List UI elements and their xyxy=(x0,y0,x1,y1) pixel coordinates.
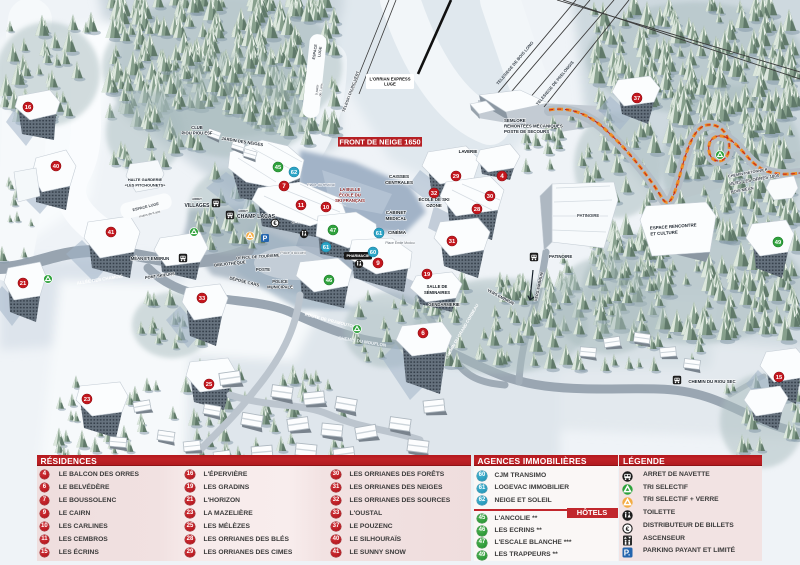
svg-text:CHEMIN DU RIOU SEC: CHEMIN DU RIOU SEC xyxy=(688,379,736,384)
svg-text:GALERIE MARCHANDE: GALERIE MARCHANDE xyxy=(291,220,336,225)
svg-text:45: 45 xyxy=(275,165,282,171)
svg-text:LUGE: LUGE xyxy=(384,81,396,86)
svg-text:PATINOIRE: PATINOIRE xyxy=(549,254,572,259)
svg-text:P.: P. xyxy=(624,549,631,558)
svg-text:POSTE DE SECOURS: POSTE DE SECOURS xyxy=(504,129,549,134)
svg-text:61: 61 xyxy=(323,245,330,251)
svg-text:33: 33 xyxy=(199,296,206,302)
svg-text:40: 40 xyxy=(53,164,59,170)
svg-text:4: 4 xyxy=(500,173,504,180)
svg-text:Place d'accueil: Place d'accueil xyxy=(280,251,305,255)
svg-text:10: 10 xyxy=(323,205,329,211)
svg-text:ARRET: ARRET xyxy=(238,209,248,213)
svg-text:VILLAGES: VILLAGES xyxy=(184,203,210,209)
svg-text:25: 25 xyxy=(206,382,213,388)
svg-text:GENDARMERIE: GENDARMERIE xyxy=(428,302,460,307)
svg-text:CENTRALES: CENTRALES xyxy=(385,180,413,185)
svg-text:ARRET: ARRET xyxy=(192,197,202,201)
svg-text:30: 30 xyxy=(487,194,493,200)
svg-text:«LES PITCHOUNETS»: «LES PITCHOUNETS» xyxy=(125,183,166,188)
svg-text:PHARMACIE: PHARMACIE xyxy=(347,254,370,258)
svg-text:SKI FRANÇAIS: SKI FRANÇAIS xyxy=(335,198,365,203)
svg-text:46: 46 xyxy=(326,278,333,284)
svg-text:60: 60 xyxy=(370,250,376,256)
svg-text:SALLE DE: SALLE DE xyxy=(427,284,448,289)
svg-text:POSTE: POSTE xyxy=(256,267,270,272)
svg-text:37: 37 xyxy=(634,96,640,102)
svg-text:PATINOIRE: PATINOIRE xyxy=(577,213,599,218)
svg-text:47: 47 xyxy=(330,228,336,234)
svg-text:PIOU PIOU ESF: PIOU PIOU ESF xyxy=(182,131,213,136)
svg-text:7: 7 xyxy=(282,183,286,190)
svg-text:MUNICIPALE: MUNICIPALE xyxy=(267,285,293,290)
svg-text:19: 19 xyxy=(424,272,431,278)
svg-text:CABINET: CABINET xyxy=(386,210,407,215)
svg-text:41: 41 xyxy=(108,230,115,236)
svg-text:LA BULLE: LA BULLE xyxy=(340,187,361,192)
svg-text:Place du festival: Place du festival xyxy=(307,183,335,187)
svg-text:MÉAN ET EMBRUN: MÉAN ET EMBRUN xyxy=(131,256,169,261)
svg-text:ÉCOLE DU: ÉCOLE DU xyxy=(339,193,361,198)
svg-text:REMONTÉES MÉCANIQUES: REMONTÉES MÉCANIQUES xyxy=(504,124,563,129)
svg-text:€: € xyxy=(626,526,630,533)
svg-text:61: 61 xyxy=(376,231,383,237)
svg-text:SEMLORE: SEMLORE xyxy=(504,118,526,123)
svg-text:P: P xyxy=(263,236,268,243)
svg-text:29: 29 xyxy=(453,174,460,180)
svg-text:CHAMP LACAS: CHAMP LACAS xyxy=(237,214,276,220)
svg-text:Place Émile Modou: Place Émile Modou xyxy=(385,240,414,245)
svg-text:POLICE: POLICE xyxy=(272,279,288,284)
svg-text:23: 23 xyxy=(84,397,91,403)
svg-text:32: 32 xyxy=(431,191,437,197)
svg-text:LAVERIE: LAVERIE xyxy=(459,149,478,154)
svg-text:21: 21 xyxy=(20,281,27,287)
svg-text:6: 6 xyxy=(421,330,425,337)
svg-text:11: 11 xyxy=(298,203,305,209)
svg-text:SÉMINAIRES: SÉMINAIRES xyxy=(424,290,450,295)
svg-text:62: 62 xyxy=(291,170,297,176)
svg-text:15: 15 xyxy=(776,375,783,381)
svg-text:CAISSES: CAISSES xyxy=(389,174,409,179)
svg-text:MÉDICAL: MÉDICAL xyxy=(386,214,407,221)
svg-text:49: 49 xyxy=(775,240,782,246)
svg-text:CINÉMA: CINÉMA xyxy=(388,228,407,235)
svg-text:FRONT DE NEIGE 1650: FRONT DE NEIGE 1650 xyxy=(339,138,420,147)
svg-text:OZONE: OZONE xyxy=(426,203,442,208)
svg-text:HALTE GARDERIE: HALTE GARDERIE xyxy=(128,177,163,182)
svg-text:9: 9 xyxy=(376,260,380,267)
svg-text:CLUB: CLUB xyxy=(191,125,203,130)
svg-text:28: 28 xyxy=(474,207,481,213)
svg-text:16: 16 xyxy=(25,105,32,111)
svg-text:31: 31 xyxy=(449,239,456,245)
